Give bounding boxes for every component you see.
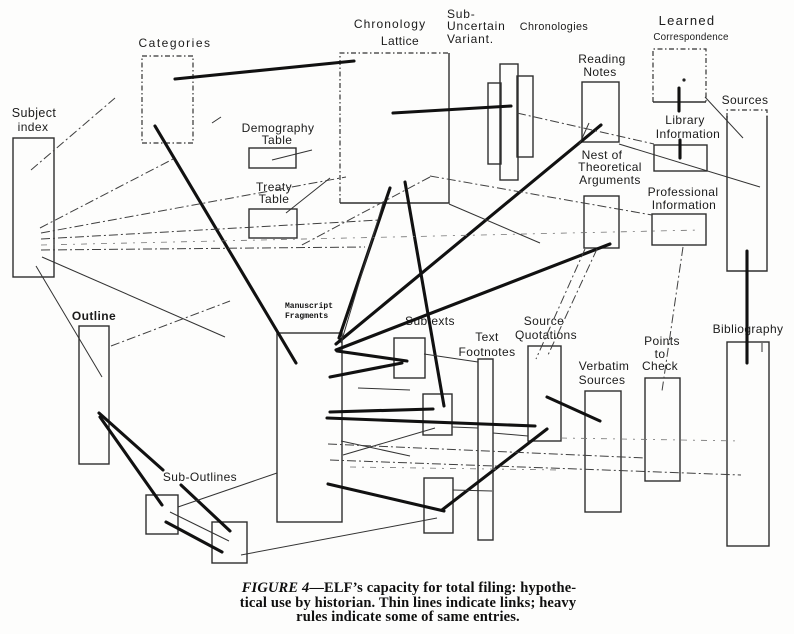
svg-text:Professional: Professional bbox=[648, 185, 719, 199]
svg-text:Arguments: Arguments bbox=[579, 173, 641, 187]
svg-text:index: index bbox=[18, 120, 49, 134]
svg-text:Sources: Sources bbox=[722, 93, 769, 107]
svg-text:Chronology: Chronology bbox=[354, 17, 426, 31]
svg-text:Notes: Notes bbox=[583, 65, 616, 79]
svg-text:Categories: Categories bbox=[138, 36, 211, 50]
svg-text:Outline: Outline bbox=[72, 309, 116, 323]
svg-text:Fragments: Fragments bbox=[285, 312, 328, 321]
svg-text:Information: Information bbox=[652, 198, 716, 212]
svg-text:Quotations: Quotations bbox=[515, 328, 577, 342]
svg-text:Sources: Sources bbox=[579, 373, 626, 387]
svg-text:Sub-Outlines: Sub-Outlines bbox=[163, 470, 237, 484]
svg-text:Footnotes: Footnotes bbox=[459, 345, 516, 359]
svg-text:Information: Information bbox=[656, 127, 720, 141]
svg-text:Learned: Learned bbox=[659, 13, 716, 28]
svg-text:FIGURE 4—ELF’s capacity for to: FIGURE 4—ELF’s capacity for total filing… bbox=[241, 580, 577, 596]
svg-text:Table: Table bbox=[259, 192, 290, 206]
svg-text:Manuscript: Manuscript bbox=[285, 302, 333, 311]
svg-text:Table: Table bbox=[262, 133, 293, 147]
svg-text:Variant.: Variant. bbox=[447, 32, 494, 46]
svg-text:Correspondence: Correspondence bbox=[653, 32, 729, 43]
svg-text:Text: Text bbox=[475, 330, 499, 344]
svg-text:Verbatim: Verbatim bbox=[579, 359, 630, 373]
svg-text:Check: Check bbox=[642, 359, 679, 373]
svg-text:rules indicate some of same en: rules indicate some of same entries. bbox=[296, 609, 520, 625]
svg-text:Chronologies: Chronologies bbox=[520, 21, 589, 33]
svg-text:Library: Library bbox=[665, 113, 704, 127]
svg-text:Uncertain: Uncertain bbox=[447, 19, 506, 33]
svg-text:Source: Source bbox=[524, 314, 564, 328]
svg-text:Reading: Reading bbox=[578, 52, 626, 66]
svg-text:Subject: Subject bbox=[12, 106, 57, 120]
svg-text:Lattice: Lattice bbox=[381, 34, 419, 48]
svg-text:Theoretical: Theoretical bbox=[578, 160, 642, 174]
svg-text:Points: Points bbox=[644, 334, 680, 348]
